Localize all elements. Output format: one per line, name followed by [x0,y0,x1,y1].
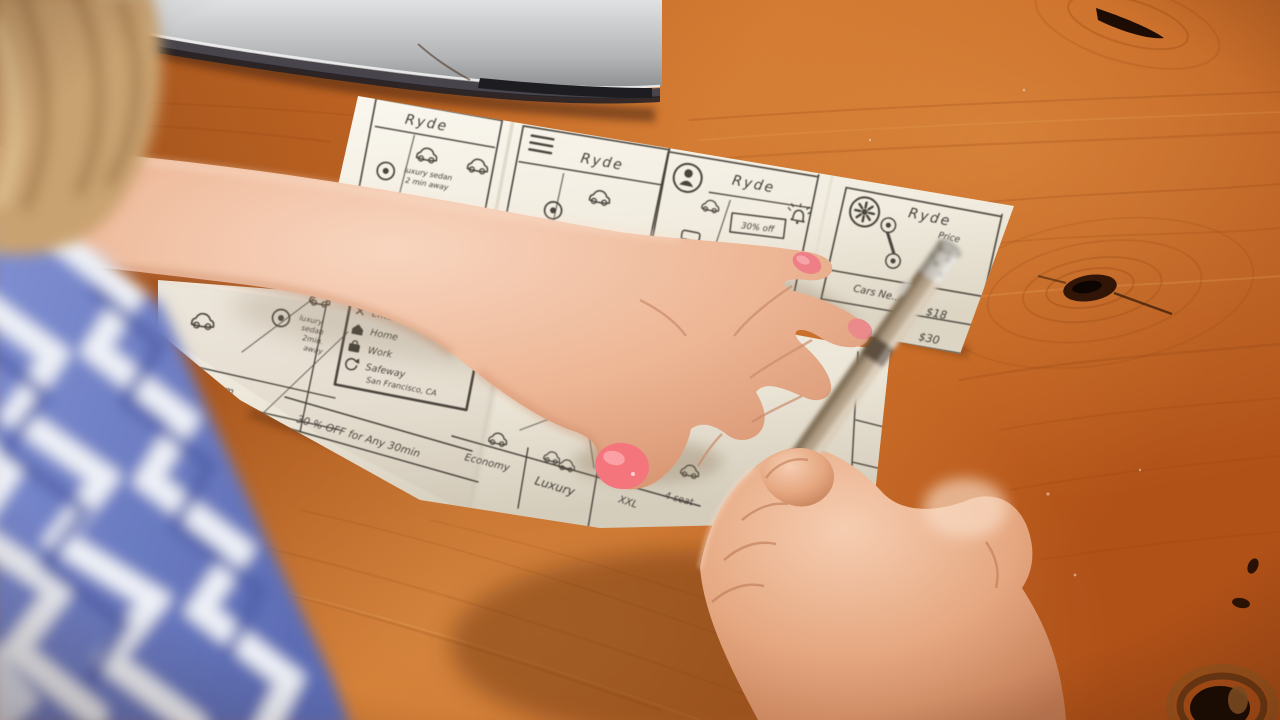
vignette [0,0,1280,720]
photo-scene: Ryde luxury sedan 2 min away Ryde [0,0,1280,720]
